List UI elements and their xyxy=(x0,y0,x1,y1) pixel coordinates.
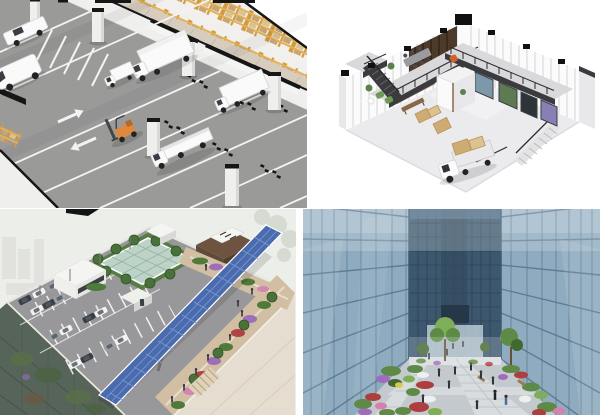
atrium-glow xyxy=(409,337,501,365)
panel-office-cutaway xyxy=(311,0,600,208)
panel-rooftop xyxy=(0,209,296,415)
haze-overlay xyxy=(303,209,600,251)
panel-courtyard xyxy=(303,209,600,415)
pedestrian-blue xyxy=(504,395,507,405)
render-collage xyxy=(0,0,600,415)
pedestrian-suit xyxy=(493,390,496,400)
panel-warehouse xyxy=(0,0,307,208)
